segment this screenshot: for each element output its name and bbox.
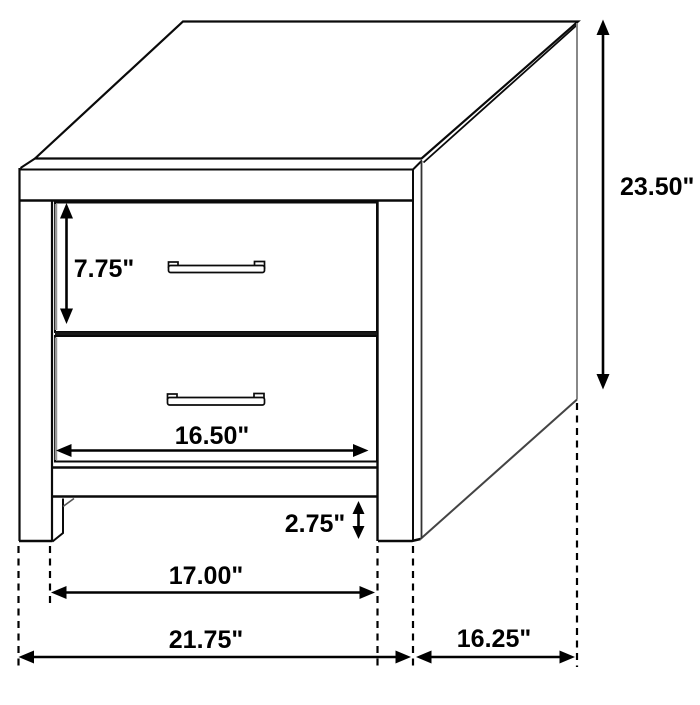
svg-text:2.75": 2.75" <box>285 510 346 538</box>
svg-text:23.50": 23.50" <box>620 173 694 201</box>
svg-text:17.00": 17.00" <box>169 562 243 590</box>
svg-text:7.75": 7.75" <box>74 255 135 283</box>
svg-text:16.50": 16.50" <box>175 422 249 450</box>
svg-text:21.75": 21.75" <box>169 626 243 654</box>
svg-text:16.25": 16.25" <box>457 625 531 653</box>
